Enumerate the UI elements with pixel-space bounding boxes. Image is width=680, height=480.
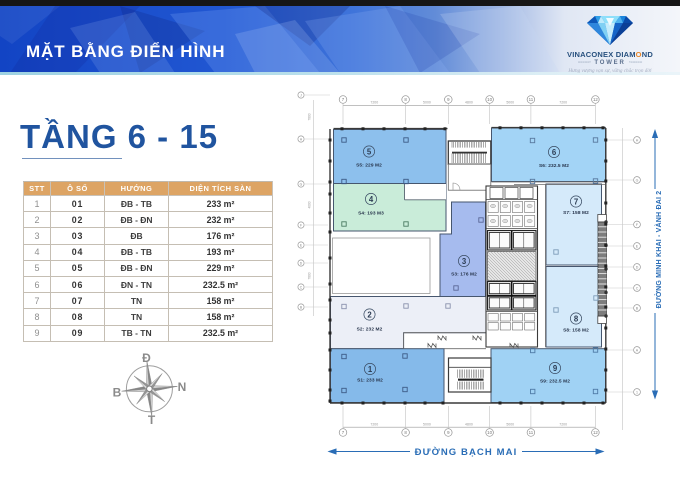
svg-text:S4: 193 M3: S4: 193 M3: [358, 211, 384, 217]
svg-text:T: T: [148, 413, 156, 427]
svg-text:10: 10: [487, 430, 492, 435]
svg-text:G: G: [636, 178, 639, 182]
svg-text:5000: 5000: [506, 423, 514, 427]
svg-text:S8: 158 M2: S8: 158 M2: [563, 328, 589, 334]
svg-text:5: 5: [367, 147, 372, 156]
svg-text:4800: 4800: [465, 101, 473, 105]
svg-text:7200: 7200: [559, 101, 567, 105]
svg-text:7200: 7200: [559, 423, 567, 427]
svg-text:S6: 232.5 M2: S6: 232.5 M2: [539, 163, 569, 169]
svg-text:12: 12: [593, 430, 598, 435]
svg-text:Đ: Đ: [142, 351, 151, 365]
svg-text:J: J: [300, 93, 302, 97]
svg-text:7200: 7200: [370, 101, 378, 105]
svg-text:12: 12: [593, 97, 598, 102]
svg-text:S2: 232 M2: S2: 232 M2: [357, 327, 383, 333]
svg-text:H: H: [636, 138, 639, 142]
svg-text:5000: 5000: [506, 101, 514, 105]
svg-text:S1: 233 M2: S1: 233 M2: [357, 378, 383, 384]
svg-text:7200: 7200: [370, 423, 378, 427]
svg-text:G: G: [300, 182, 303, 186]
svg-text:D: D: [636, 265, 639, 269]
svg-text:5000: 5000: [423, 423, 431, 427]
svg-text:2: 2: [367, 310, 372, 319]
svg-text:F: F: [300, 223, 302, 227]
svg-text:6: 6: [552, 148, 557, 157]
svg-text:N: N: [178, 380, 187, 394]
svg-text:5000: 5000: [423, 101, 431, 105]
svg-text:S7: 158 M2: S7: 158 M2: [563, 210, 589, 216]
svg-text:11: 11: [529, 97, 534, 102]
svg-text:7: 7: [574, 197, 578, 206]
svg-text:ĐƯỜNG BẠCH MAI: ĐƯỜNG BẠCH MAI: [415, 446, 518, 458]
svg-text:10: 10: [487, 97, 492, 102]
svg-text:1: 1: [368, 365, 373, 374]
svg-text:3: 3: [462, 257, 467, 266]
svg-text:7800: 7800: [308, 272, 312, 279]
svg-text:4800: 4800: [465, 423, 473, 427]
svg-text:C: C: [636, 286, 639, 290]
svg-text:S9: 232.5 M2: S9: 232.5 M2: [540, 379, 570, 385]
svg-text:11: 11: [529, 430, 534, 435]
svg-text:8: 8: [574, 314, 579, 323]
svg-text:B: B: [113, 386, 122, 400]
svg-text:S5: 229 M2: S5: 229 M2: [356, 163, 382, 169]
svg-text:9: 9: [553, 364, 558, 373]
svg-text:4: 4: [369, 195, 374, 204]
svg-text:4000: 4000: [308, 201, 312, 208]
svg-text:S3: 176 M2: S3: 176 M2: [451, 272, 477, 278]
svg-text:1: 1: [636, 390, 638, 394]
svg-text:7800: 7800: [308, 113, 312, 120]
svg-text:ĐƯỜNG MINH KHAI - VÀNH ĐAI 2: ĐƯỜNG MINH KHAI - VÀNH ĐAI 2: [654, 191, 663, 309]
